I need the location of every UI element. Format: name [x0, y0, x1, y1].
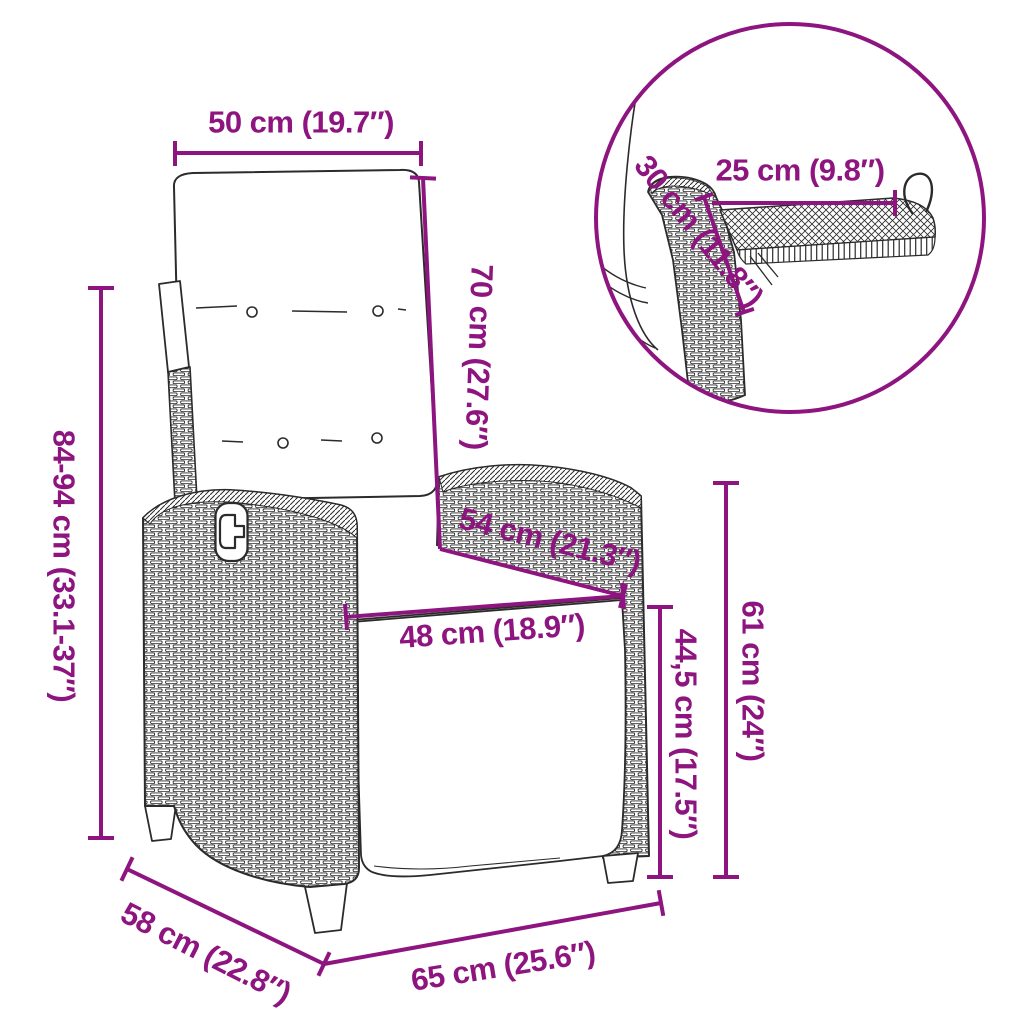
product-dimension-diagram: 50 cm (19.7″) 70 cm (27.6″) 84-94 cm (33…	[0, 0, 1024, 1024]
dim-label-tray-width: 25 cm (9.8″)	[715, 155, 884, 186]
backrest-cushion	[174, 170, 437, 500]
dim-label-backrest-height: 70 cm (27.6″)	[460, 264, 497, 451]
recline-handle-icon	[216, 503, 248, 561]
dim-label-armrest-height: 61 cm (24″)	[738, 601, 769, 762]
tray-detail-inset	[592, 24, 984, 412]
dim-label-top-width: 50 cm (19.7″)	[208, 107, 394, 138]
dim-label-seat-height: 44,5 cm (17.5″)	[671, 629, 702, 840]
dim-label-total-height: 84-94 cm (33.1-37″)	[49, 430, 80, 702]
left-armrest	[143, 490, 359, 887]
